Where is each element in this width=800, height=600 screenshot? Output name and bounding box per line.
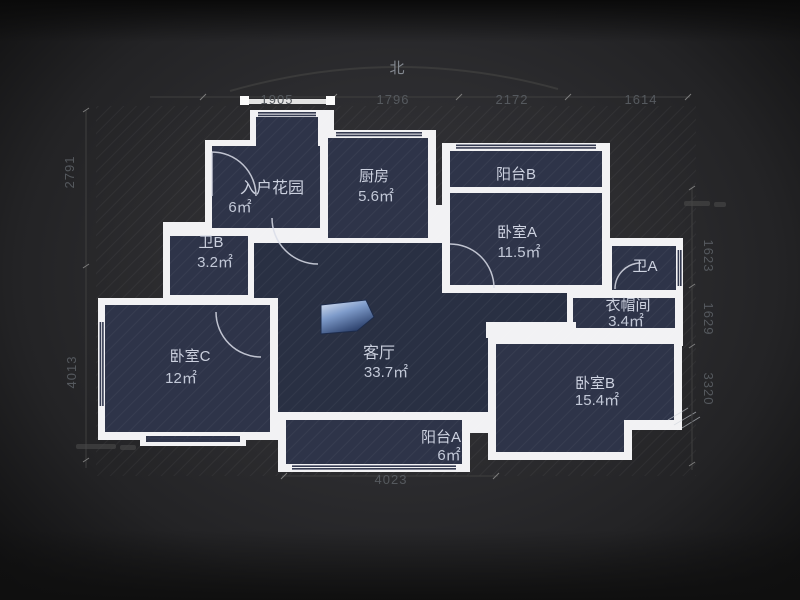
label-balcony-b: 阳台B <box>496 166 536 183</box>
dim-top-1: 1905 <box>261 92 294 107</box>
label-bath-b: 卫B <box>198 234 223 251</box>
dim-top-3: 2172 <box>496 92 529 107</box>
north-label: 北 <box>389 60 404 77</box>
area-entry-garden: 6㎡ <box>228 199 251 216</box>
area-bath-b: 3.2㎡ <box>197 254 233 271</box>
watermark-smudge <box>120 445 136 450</box>
dim-left-2: 4013 <box>64 356 79 389</box>
dim-right-2: 1629 <box>701 303 716 336</box>
area-bedroom-b: 15.4㎡ <box>575 392 619 409</box>
area-balcony-a: 6㎡ <box>437 447 460 464</box>
floorplan-screenshot: 1905 1796 2172 1614 2791 4013 1623 1629 … <box>0 0 800 600</box>
dim-right-1: 1623 <box>701 240 716 273</box>
dim-top-2: 1796 <box>377 92 410 107</box>
label-bedroom-a: 卧室A <box>497 224 537 241</box>
watermark-smudge <box>76 444 116 449</box>
area-bedroom-a: 11.5㎡ <box>497 244 540 261</box>
label-kitchen: 厨房 <box>359 168 389 185</box>
hatch-texture <box>96 106 696 476</box>
area-living-room: 33.7㎡ <box>364 364 408 381</box>
area-kitchen: 5.6㎡ <box>358 188 394 205</box>
area-bedroom-c: 12㎡ <box>165 370 197 387</box>
dim-right-3: 3320 <box>701 373 716 406</box>
label-bedroom-b: 卧室B <box>575 375 615 392</box>
label-bath-a: 卫A <box>632 258 657 275</box>
dim-highlight-cap-left <box>240 96 249 105</box>
label-bedroom-c: 卧室C <box>170 348 211 365</box>
label-balcony-a: 阳台A <box>421 429 461 446</box>
floorplan-svg: 1905 1796 2172 1614 2791 4013 1623 1629 … <box>0 0 800 600</box>
label-cloakroom: 衣帽间 <box>605 297 650 314</box>
dim-highlight-cap-right <box>326 96 335 105</box>
watermark-smudge <box>714 202 726 207</box>
area-cloakroom: 3.4㎡ <box>608 313 644 330</box>
dim-bottom-1: 4023 <box>375 472 408 487</box>
watermark-smudge <box>684 201 710 206</box>
label-entry-garden: 入户花园 <box>240 179 304 197</box>
label-living-room: 客厅 <box>363 344 395 362</box>
dim-left-1: 2791 <box>62 156 77 189</box>
dim-top-4: 1614 <box>625 92 658 107</box>
